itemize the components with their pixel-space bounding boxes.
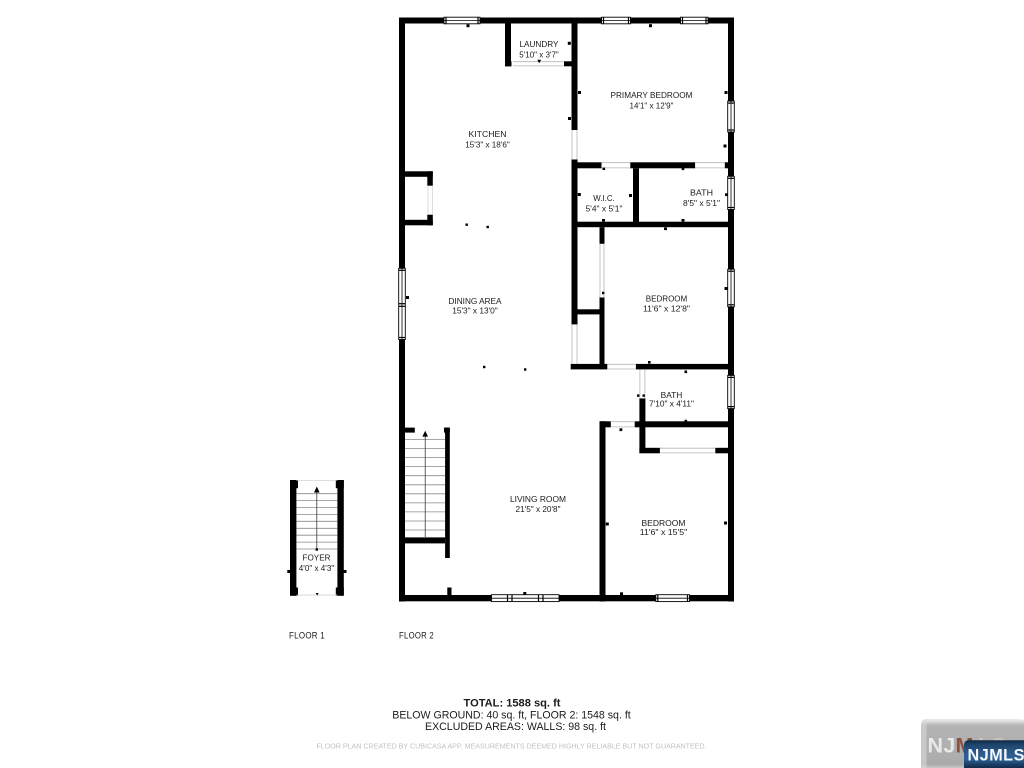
- svg-text:5'10" x 3'7": 5'10" x 3'7": [519, 50, 559, 60]
- svg-text:7'10" x 4'11": 7'10" x 4'11": [649, 399, 694, 409]
- svg-text:14'1" x 12'9": 14'1" x 12'9": [630, 100, 674, 110]
- svg-text:21'5" x 20'8": 21'5" x 20'8": [516, 504, 561, 514]
- svg-text:NJ: NJ: [928, 733, 956, 757]
- svg-text:11'6" x 15'5": 11'6" x 15'5": [640, 527, 688, 537]
- svg-text:DINING AREA: DINING AREA: [449, 296, 502, 306]
- svg-text:EXCLUDED AREAS: WALLS: 98 sq.: EXCLUDED AREAS: WALLS: 98 sq. ft: [425, 721, 606, 733]
- svg-text:TOTAL: 1588 sq. ft: TOTAL: 1588 sq. ft: [464, 698, 561, 710]
- svg-text:FOYER: FOYER: [303, 552, 331, 562]
- svg-text:NJMLS: NJMLS: [968, 746, 1024, 764]
- svg-text:PRIMARY BEDROOM: PRIMARY BEDROOM: [611, 90, 693, 100]
- svg-text:8'5" x 5'1": 8'5" x 5'1": [683, 198, 720, 208]
- svg-text:15'3" x 18'6": 15'3" x 18'6": [465, 140, 510, 150]
- svg-text:W.I.C.: W.I.C.: [593, 193, 615, 203]
- svg-text:LIVING ROOM: LIVING ROOM: [510, 494, 566, 504]
- svg-text:4'0" x 4'3": 4'0" x 4'3": [299, 563, 335, 573]
- svg-text:5'4" x 5'1": 5'4" x 5'1": [586, 203, 623, 213]
- svg-text:FLOOR 1: FLOOR 1: [289, 630, 325, 640]
- svg-text:BATH: BATH: [690, 188, 713, 198]
- svg-text:15'3" x 13'0": 15'3" x 13'0": [452, 306, 498, 316]
- svg-text:LAUNDRY: LAUNDRY: [520, 39, 559, 49]
- svg-text:BEDROOM: BEDROOM: [646, 293, 688, 303]
- svg-text:KITCHEN: KITCHEN: [469, 129, 507, 139]
- svg-text:FLOOR 2: FLOOR 2: [399, 630, 434, 640]
- svg-text:11'6" x 12'8": 11'6" x 12'8": [643, 304, 690, 314]
- svg-text:FLOOR PLAN CREATED BY CUBICASA: FLOOR PLAN CREATED BY CUBICASA APP. MEAS…: [316, 742, 706, 750]
- svg-text:BELOW GROUND: 40 sq. ft, FLOOR: BELOW GROUND: 40 sq. ft, FLOOR 2: 1548 s…: [392, 709, 630, 721]
